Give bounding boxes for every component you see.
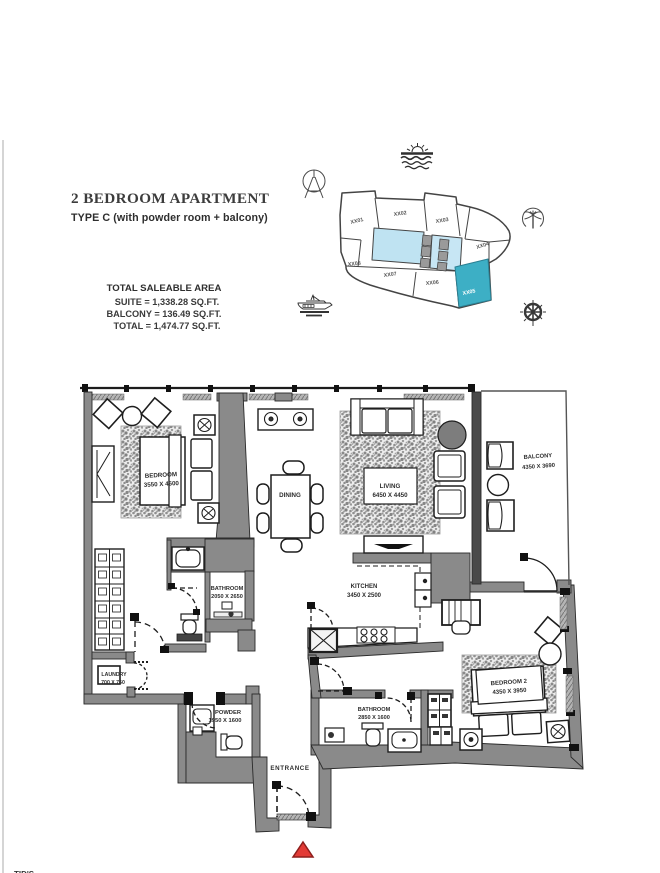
svg-text:TYPE C (with powder room + bal: TYPE C (with powder room + balcony): [71, 212, 268, 224]
svg-text:TOTAL SALEABLE AREA: TOTAL SALEABLE AREA: [107, 283, 222, 294]
svg-text:2 BEDROOM APARTMENT: 2 BEDROOM APARTMENT: [71, 190, 269, 207]
svg-text:DINING: DINING: [279, 492, 301, 499]
svg-text:ENTRANCE: ENTRANCE: [270, 765, 309, 772]
svg-text:1950 X 1600: 1950 X 1600: [209, 718, 242, 724]
svg-text:SUITE = 1,338.28 SQ.FT.: SUITE = 1,338.28 SQ.FT.: [115, 297, 219, 307]
svg-text:BALCONY = 136.49 SQ.FT.: BALCONY = 136.49 SQ.FT.: [107, 309, 222, 319]
svg-text:2850 X 1600: 2850 X 1600: [358, 715, 390, 721]
svg-text:LIVING: LIVING: [380, 483, 401, 490]
svg-text:3450 X 2500: 3450 X 2500: [347, 593, 382, 599]
svg-text:700 X 750: 700 X 750: [101, 680, 125, 686]
svg-text:LAUNDRY: LAUNDRY: [101, 672, 127, 678]
svg-text:POWDER: POWDER: [215, 710, 242, 716]
svg-text:BALCONY: BALCONY: [523, 453, 552, 461]
svg-text:4350 X 3690: 4350 X 3690: [522, 463, 555, 471]
svg-text:TOTAL = 1,474.77 SQ.FT.: TOTAL = 1,474.77 SQ.FT.: [114, 321, 221, 331]
svg-text:6450 X 4450: 6450 X 4450: [372, 492, 408, 499]
svg-text:BATHROOM: BATHROOM: [211, 586, 244, 592]
svg-text:2050 X 2650: 2050 X 2650: [211, 594, 243, 600]
svg-text:KITCHEN: KITCHEN: [351, 584, 378, 590]
svg-text:BATHROOM: BATHROOM: [358, 707, 391, 713]
